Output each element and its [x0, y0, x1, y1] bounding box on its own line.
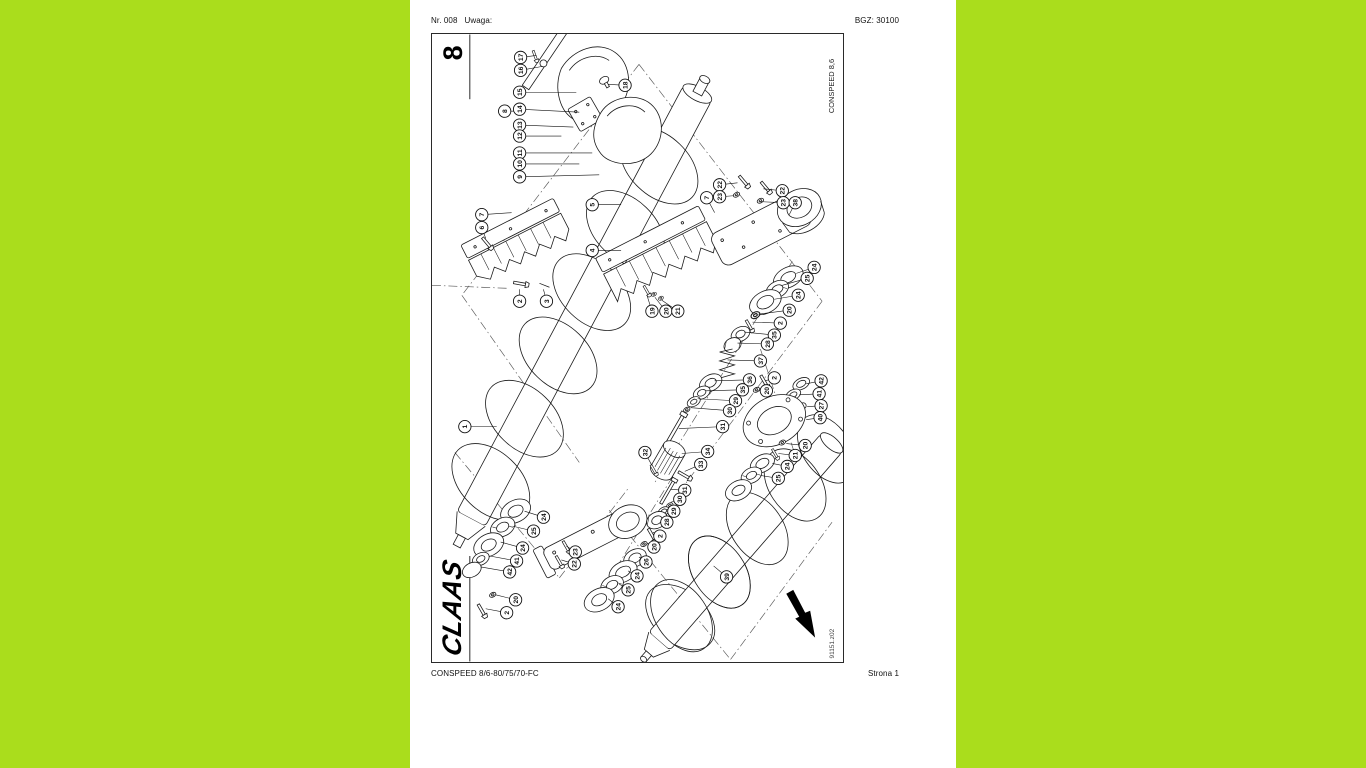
part-balloon-22: 22	[713, 179, 725, 191]
part-balloon-6: 6	[476, 221, 488, 233]
svg-text:28: 28	[765, 340, 772, 348]
part-balloon-11: 11	[513, 147, 525, 159]
part-balloon-23: 23	[713, 191, 725, 203]
svg-text:25: 25	[625, 586, 632, 594]
catalog-page: Nr. 008 Uwaga: BGZ: 30100	[410, 0, 956, 768]
part-balloon-16: 16	[514, 64, 526, 76]
part-balloon-24: 24	[631, 570, 643, 582]
svg-text:20: 20	[787, 306, 794, 314]
svg-text:8: 8	[502, 109, 509, 113]
svg-text:3: 3	[544, 299, 551, 303]
part-balloon-20: 20	[660, 305, 672, 317]
svg-text:41: 41	[817, 390, 824, 398]
part-balloon-25: 25	[801, 272, 813, 284]
svg-text:18: 18	[622, 81, 629, 89]
svg-text:20: 20	[764, 387, 771, 395]
svg-text:2: 2	[778, 321, 785, 325]
direction-arrow-icon	[786, 590, 815, 638]
svg-text:37: 37	[758, 357, 765, 365]
part-balloon-22: 22	[568, 558, 580, 570]
svg-text:27: 27	[818, 402, 825, 410]
footer-model-code: CONSPEED 8/6-80/75/70-FC	[431, 669, 539, 678]
part-balloon-3: 3	[540, 295, 552, 307]
svg-text:7: 7	[479, 213, 486, 217]
svg-text:40: 40	[817, 414, 824, 422]
part-balloon-25: 25	[527, 525, 539, 537]
part-balloon-28: 28	[761, 338, 773, 350]
svg-text:32: 32	[642, 448, 649, 456]
part-balloon-29: 29	[668, 505, 680, 517]
part-balloon-17: 17	[514, 51, 526, 63]
part-balloon-21: 21	[672, 305, 684, 317]
header-note: Nr. 008 Uwaga:	[431, 16, 492, 25]
svg-text:30: 30	[727, 407, 734, 415]
main-auger	[432, 52, 753, 571]
part-balloon-20: 20	[760, 385, 772, 397]
part-balloon-31: 31	[716, 420, 728, 432]
bearing-stack-upper	[648, 261, 807, 484]
part-balloon-33: 33	[695, 458, 707, 470]
svg-text:28: 28	[664, 518, 671, 526]
svg-text:35: 35	[740, 386, 747, 394]
part-balloon-7: 7	[476, 208, 488, 220]
svg-text:14: 14	[517, 105, 524, 113]
part-balloon-37: 37	[754, 355, 766, 367]
svg-text:25: 25	[805, 274, 812, 282]
part-balloon-2: 2	[768, 372, 780, 384]
part-balloon-20: 20	[509, 594, 521, 606]
part-balloon-24: 24	[516, 542, 528, 554]
svg-text:11: 11	[517, 149, 524, 156]
part-balloon-8: 8	[498, 105, 510, 117]
svg-text:26: 26	[643, 558, 650, 566]
footer-page-number: Strona 1	[868, 669, 899, 678]
part-balloon-24: 24	[537, 511, 549, 523]
part-balloon-14: 14	[513, 103, 525, 115]
part-balloon-26: 26	[640, 556, 652, 568]
svg-text:23: 23	[573, 548, 580, 556]
part-balloon-39: 39	[720, 571, 732, 583]
svg-text:7: 7	[704, 196, 711, 200]
page-footer: CONSPEED 8/6-80/75/70-FC Strona 1	[431, 669, 899, 678]
part-balloon-42: 42	[815, 375, 827, 387]
part-balloon-24: 24	[612, 601, 624, 613]
part-balloon-41: 41	[510, 555, 522, 567]
svg-text:5: 5	[590, 203, 597, 207]
svg-text:6: 6	[479, 225, 486, 229]
svg-text:21: 21	[675, 307, 682, 315]
exploded-view-drawing: 1716151413121110981876542322237222338192…	[432, 34, 843, 662]
part-balloon-32: 32	[639, 446, 651, 458]
svg-text:29: 29	[671, 507, 678, 515]
svg-text:34: 34	[705, 448, 712, 456]
svg-text:23: 23	[717, 193, 724, 201]
part-balloon-10: 10	[513, 158, 525, 170]
part-balloon-41: 41	[813, 388, 825, 400]
part-balloon-24: 24	[792, 289, 804, 301]
svg-text:22: 22	[572, 560, 579, 568]
part-balloon-34: 34	[701, 445, 713, 457]
part-balloon-20: 20	[799, 439, 811, 451]
part-balloon-24: 24	[781, 460, 793, 472]
svg-text:2: 2	[517, 299, 524, 303]
svg-text:31: 31	[720, 423, 727, 431]
svg-text:15: 15	[517, 88, 524, 96]
svg-text:1: 1	[462, 425, 469, 429]
svg-text:24: 24	[634, 572, 641, 580]
spring-part	[720, 349, 735, 378]
part-balloon-28: 28	[661, 516, 673, 528]
hood-assembly	[522, 34, 661, 164]
svg-text:22: 22	[717, 181, 724, 189]
part-balloon-40: 40	[814, 411, 826, 423]
svg-text:24: 24	[541, 513, 548, 521]
svg-text:29: 29	[733, 397, 740, 405]
part-balloon-7: 7	[700, 192, 712, 204]
part-balloon-5: 5	[586, 199, 598, 211]
part-balloon-12: 12	[513, 130, 525, 142]
part-balloon-2: 2	[774, 317, 786, 329]
svg-text:24: 24	[520, 544, 527, 552]
splined-coupling-part	[648, 437, 689, 483]
viewer-background: { "page": { "colors": { "margin_green": …	[0, 0, 1366, 768]
part-balloon-23: 23	[777, 197, 789, 209]
diagram-frame: 1716151413121110981876542322237222338192…	[431, 33, 844, 663]
svg-text:23: 23	[781, 199, 788, 207]
part-balloon-42: 42	[503, 566, 515, 578]
svg-text:42: 42	[507, 568, 514, 576]
part-balloon-15: 15	[513, 86, 525, 98]
mounting-bracket-top	[708, 174, 831, 272]
part-balloon-35: 35	[736, 384, 748, 396]
svg-text:13: 13	[517, 121, 524, 129]
model-label: CONSPEED 8,6	[827, 59, 836, 113]
part-balloon-23: 23	[569, 546, 581, 558]
svg-text:20: 20	[663, 307, 670, 315]
part-balloon-2: 2	[513, 295, 525, 307]
svg-text:21: 21	[793, 451, 800, 459]
svg-text:24: 24	[812, 263, 819, 271]
page-header: Nr. 008 Uwaga: BGZ: 30100	[431, 16, 899, 25]
svg-text:17: 17	[518, 53, 525, 61]
svg-text:33: 33	[698, 460, 705, 468]
svg-text:2: 2	[504, 611, 511, 615]
part-balloon-19: 19	[646, 305, 658, 317]
drawing-code: 91151.z02	[829, 628, 836, 658]
part-balloon-4: 4	[586, 244, 598, 256]
part-balloon-20: 20	[783, 304, 795, 316]
svg-text:10: 10	[517, 160, 524, 168]
svg-text:31: 31	[682, 486, 689, 494]
part-balloon-25: 25	[622, 584, 634, 596]
svg-text:2: 2	[657, 534, 664, 538]
svg-text:24: 24	[785, 462, 792, 470]
svg-text:20: 20	[803, 442, 810, 450]
svg-text:25: 25	[776, 474, 783, 482]
svg-text:25: 25	[531, 527, 538, 535]
part-balloon-20: 20	[648, 541, 660, 553]
svg-text:19: 19	[649, 307, 656, 315]
part-balloon-1: 1	[459, 420, 471, 432]
svg-text:9: 9	[517, 175, 524, 179]
svg-text:12: 12	[517, 132, 524, 140]
svg-text:41: 41	[514, 557, 521, 565]
svg-text:36: 36	[747, 376, 754, 384]
svg-text:30: 30	[677, 495, 684, 503]
svg-text:2: 2	[772, 376, 779, 380]
part-balloon-24: 24	[808, 261, 820, 273]
part-balloon-30: 30	[723, 405, 735, 417]
part-balloon-21: 21	[789, 449, 801, 461]
svg-text:20: 20	[651, 543, 658, 551]
svg-text:16: 16	[518, 66, 525, 74]
part-balloon-22: 22	[776, 185, 788, 197]
part-balloon-13: 13	[513, 119, 525, 131]
sheet-number: 8	[438, 45, 468, 60]
part-balloon-30: 30	[674, 493, 686, 505]
svg-text:20: 20	[513, 596, 520, 604]
svg-text:24: 24	[796, 291, 803, 299]
part-balloon-2: 2	[654, 530, 666, 542]
svg-text:4: 4	[590, 248, 597, 252]
svg-text:38: 38	[793, 199, 800, 207]
svg-text:35: 35	[772, 331, 779, 339]
svg-text:22: 22	[780, 187, 787, 195]
svg-text:42: 42	[818, 377, 825, 385]
header-bgz-code: BGZ: 30100	[855, 16, 899, 25]
svg-text:39: 39	[724, 573, 731, 581]
svg-text:24: 24	[615, 603, 622, 611]
part-balloon-27: 27	[815, 400, 827, 412]
part-balloon-9: 9	[513, 171, 525, 183]
part-balloon-25: 25	[772, 472, 784, 484]
claas-logo: CLAAS	[436, 556, 467, 659]
part-balloon-38: 38	[789, 197, 801, 209]
part-balloon-18: 18	[619, 79, 631, 91]
part-balloon-2: 2	[500, 607, 512, 619]
